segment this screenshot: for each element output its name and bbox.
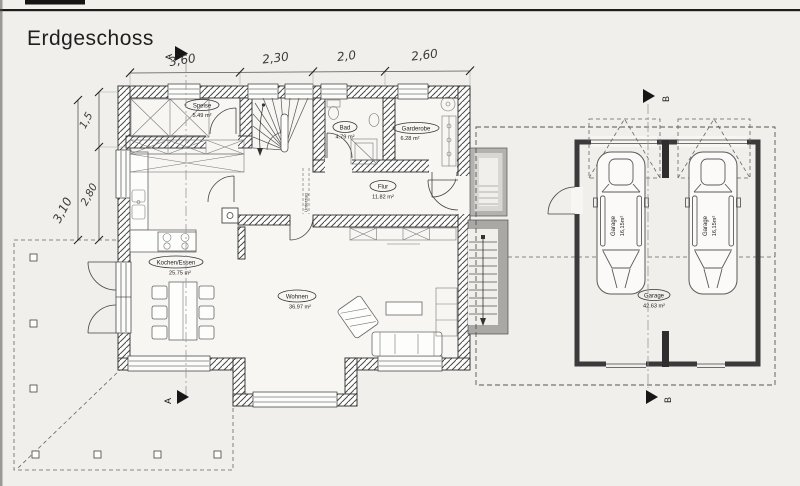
- beam-label: Unterzug: [304, 193, 309, 212]
- coffee-table: [386, 302, 422, 315]
- svg-text:Flur: Flur: [378, 185, 388, 191]
- dim-top-1: 3,60: [168, 51, 197, 69]
- garage-building: Garage 16,15m² Garage 16,15m² Garage 42.…: [548, 119, 758, 371]
- garage-left-label: Garage: [611, 215, 617, 236]
- svg-text:6.28 m²: 6.28 m²: [401, 136, 420, 142]
- garage-middle-wall: [662, 140, 669, 178]
- sofa: [372, 332, 442, 356]
- window: [128, 356, 210, 371]
- svg-text:B: B: [661, 96, 671, 102]
- garage-right-area: 16,15m²: [712, 216, 718, 237]
- window: [116, 262, 131, 333]
- floor-plan-drawing: Unterzug: [0, 0, 800, 486]
- exterior-stair: [468, 220, 508, 334]
- svg-text:Garderobe: Garderobe: [402, 127, 431, 133]
- svg-text:B: B: [663, 397, 673, 403]
- dim-left-2: 2,80: [79, 181, 101, 208]
- garage-right-label: Garage: [703, 215, 709, 236]
- window: [378, 356, 442, 371]
- terrace-door-arcs: [88, 262, 116, 333]
- dim-top-4: 2,60: [410, 46, 439, 63]
- section-marker-b-bottom: B: [646, 390, 673, 404]
- chimney: [222, 208, 238, 223]
- window: [398, 84, 428, 99]
- window: [321, 84, 347, 99]
- window: [285, 84, 313, 99]
- dining-table: [152, 282, 214, 340]
- dim-top-3: 2,0: [336, 48, 357, 64]
- floor-plan-page: Erdgeschoss: [0, 0, 800, 486]
- window: [116, 150, 131, 198]
- room-label-garage-total: Garage 42.63 m²: [638, 290, 670, 310]
- dim-top-2: 2,30: [261, 49, 290, 66]
- svg-text:11.82 m²: 11.82 m²: [372, 195, 394, 201]
- svg-text:25.75 m²: 25.75 m²: [169, 271, 191, 277]
- window: [248, 84, 278, 99]
- svg-text:Garage: Garage: [644, 294, 665, 300]
- svg-text:36.97 m²: 36.97 m²: [289, 305, 311, 311]
- section-marker-b-top: B: [643, 89, 671, 103]
- dimension-line-left: 1,5 2,80 3,10: [50, 88, 126, 244]
- section-marker-a-bottom: A: [163, 390, 189, 404]
- svg-text:Bad: Bad: [340, 126, 351, 132]
- window: [253, 392, 337, 407]
- svg-text:Speise: Speise: [193, 104, 212, 110]
- svg-text:42.63 m²: 42.63 m²: [643, 304, 665, 310]
- svg-text:Wohnen: Wohnen: [286, 295, 308, 301]
- garage-side-door: [548, 187, 575, 214]
- window: [168, 84, 200, 99]
- dim-left-3: 3,10: [50, 195, 75, 225]
- garage-left-area: 16,15m²: [620, 216, 626, 237]
- dim-left-1: 1,5: [77, 110, 96, 131]
- svg-text:A: A: [163, 398, 173, 404]
- svg-text:Kochen/Essen: Kochen/Essen: [157, 261, 196, 267]
- svg-text:5.49 m²: 5.49 m²: [193, 113, 212, 119]
- svg-text:4.79 m²: 4.79 m²: [336, 135, 355, 141]
